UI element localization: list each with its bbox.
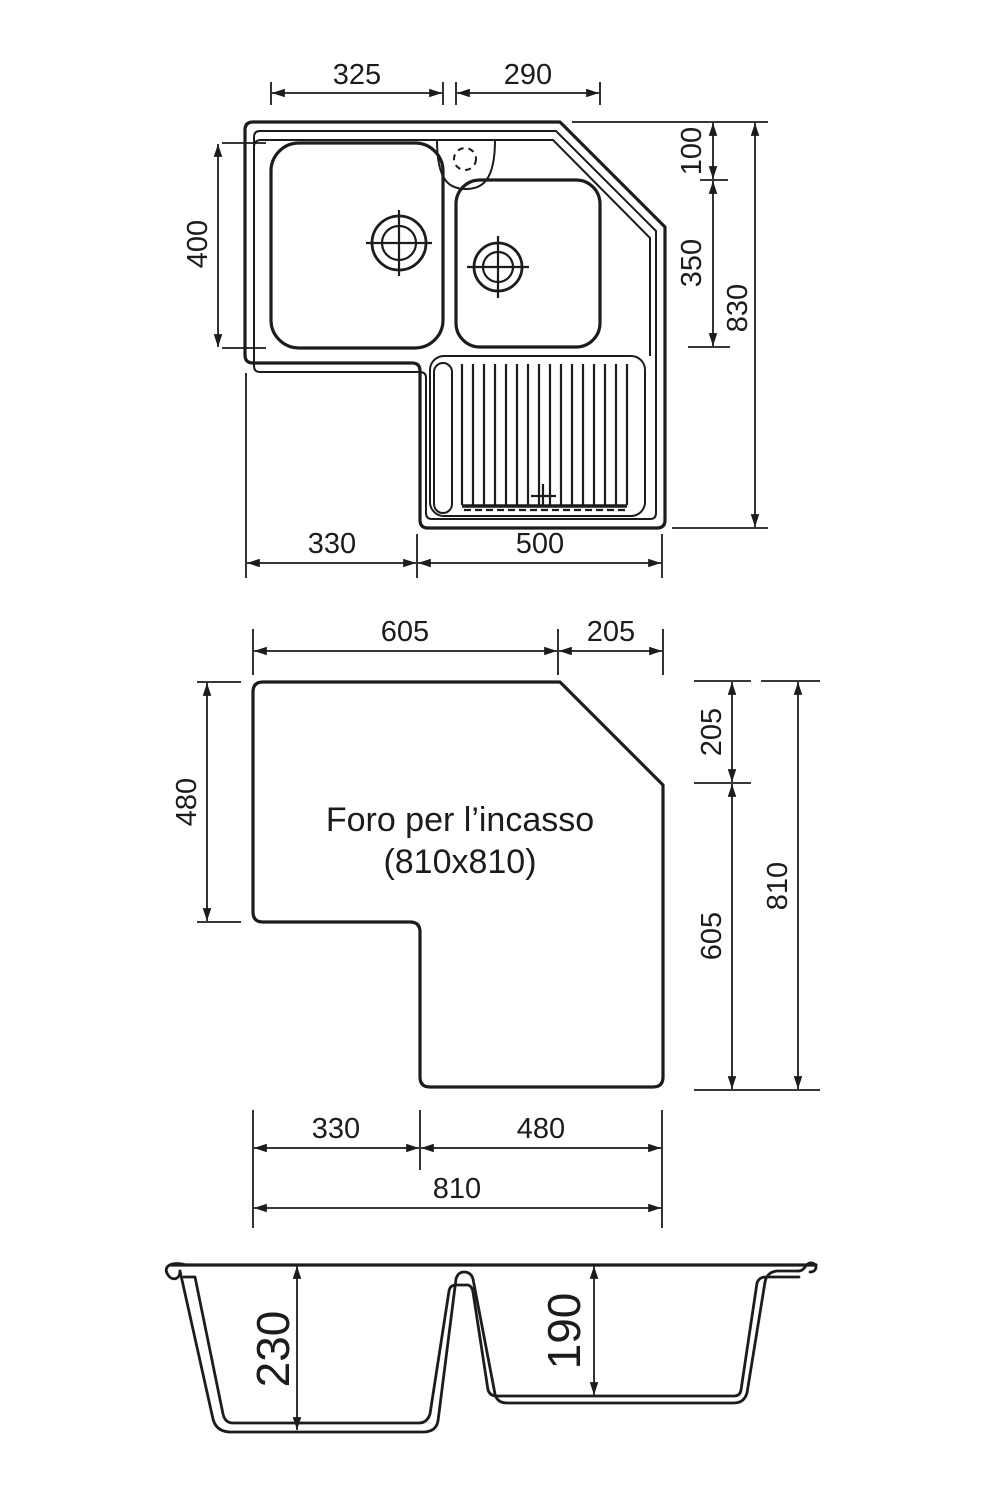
dim-label-290: 290 — [504, 59, 552, 91]
dim-330-top-view: 330 — [246, 373, 662, 578]
technical-drawing-sheet: 325 290 400 100 350 — [0, 0, 1000, 1500]
right-drain-icon — [467, 236, 529, 298]
dim-205-top: 205 — [559, 616, 662, 651]
drainboard-drain-mark — [531, 484, 556, 506]
dim-290: 290 — [456, 59, 600, 105]
dim-label-230: 230 — [247, 1311, 299, 1388]
dim-label-605-right: 605 — [696, 912, 728, 960]
sink-technical-drawing: 325 290 400 100 350 — [0, 0, 1000, 1500]
dim-480-left: 480 — [171, 682, 241, 922]
drainboard — [430, 356, 645, 516]
dim-label-325: 325 — [333, 59, 381, 91]
cutout-label-line2: (810x810) — [383, 843, 536, 881]
dim-label-480-left: 480 — [171, 778, 203, 826]
cutout-label-line1: Foro per l’incasso — [326, 801, 594, 839]
right-basin — [456, 180, 600, 347]
dim-325: 325 — [271, 59, 443, 105]
right-drain-crosshair — [467, 236, 529, 298]
dim-810-bottom: 810 — [254, 1173, 661, 1208]
dim-label-100: 100 — [676, 127, 708, 175]
dim-480-bottom: 480 — [421, 1113, 661, 1148]
faucet-deck-tab — [437, 140, 495, 189]
dim-label-830: 830 — [722, 284, 754, 332]
drainboard-side-groove — [434, 363, 452, 513]
left-drain-crosshair — [366, 210, 432, 276]
dim-label-205-top: 205 — [587, 616, 635, 648]
drainboard-ribs — [462, 364, 627, 505]
dim-330-bottom: 330 — [253, 1110, 662, 1228]
dim-label-500: 500 — [516, 528, 564, 560]
dim-label-810-right: 810 — [762, 862, 794, 910]
section-view: 230 190 — [166, 1263, 816, 1432]
dim-605-right: 605 — [694, 784, 820, 1090]
faucet-hole-icon — [454, 148, 476, 170]
dim-label-205-right: 205 — [696, 708, 728, 756]
dim-label-330: 330 — [308, 528, 356, 560]
cutout-view: Foro per l’incasso (810x810) 605 205 480 — [171, 616, 820, 1228]
dim-500: 500 — [418, 528, 661, 563]
dim-label-190: 190 — [538, 1293, 590, 1370]
cutout-outline — [253, 682, 663, 1087]
dim-label-480-bottom: 480 — [517, 1113, 565, 1145]
dim-label-350: 350 — [676, 239, 708, 287]
dim-810-right: 810 — [762, 682, 798, 1089]
dim-label-605-top: 605 — [381, 616, 429, 648]
dim-230-depth: 230 — [247, 1266, 299, 1430]
left-basin — [271, 143, 443, 348]
dim-205-right: 205 — [694, 681, 820, 783]
dim-830: 830 — [672, 123, 768, 528]
dim-label-810-bottom: 810 — [433, 1173, 481, 1205]
top-view: 325 290 400 100 350 — [182, 59, 768, 578]
dim-100: 100 — [572, 122, 768, 180]
left-drain-icon — [366, 210, 432, 276]
sink-rim-second-line — [254, 140, 650, 356]
dim-label-330-bottom: 330 — [312, 1113, 360, 1145]
dim-190-depth: 190 — [538, 1266, 594, 1395]
dim-label-400: 400 — [182, 220, 214, 268]
